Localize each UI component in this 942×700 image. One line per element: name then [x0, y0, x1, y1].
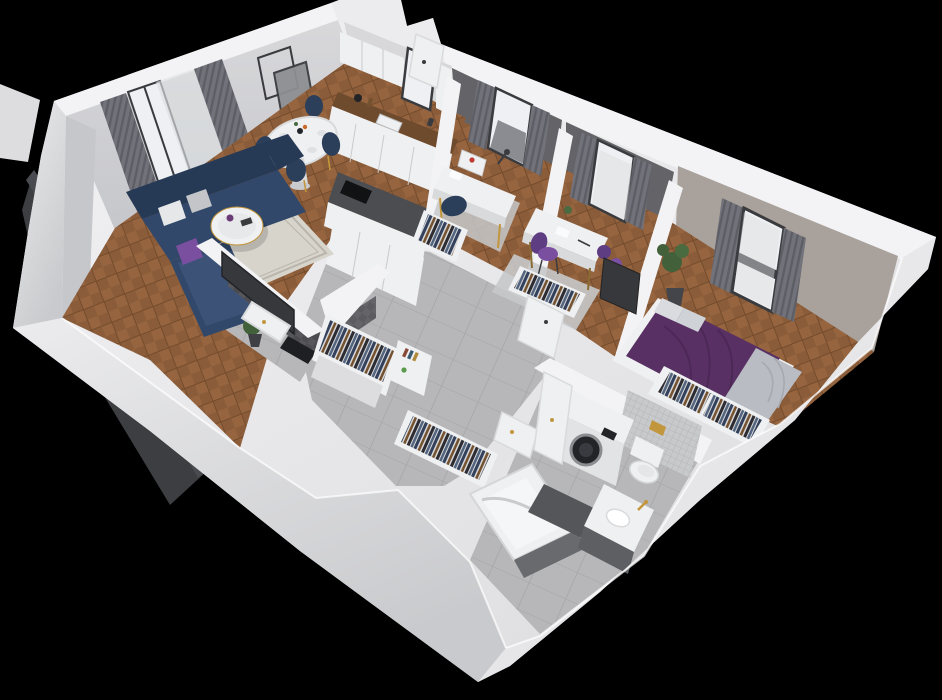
office2-chair-seat	[538, 247, 558, 261]
door-handle	[544, 320, 548, 324]
printer-red-part	[469, 157, 474, 162]
orange-fruit	[303, 125, 307, 129]
hall-door-handle	[510, 430, 514, 434]
faucet-head	[644, 500, 648, 504]
table-greens	[294, 122, 298, 126]
kitchen-kettle	[354, 94, 362, 102]
table-vase	[297, 128, 303, 134]
dining-chair-back	[305, 95, 323, 117]
dining-table-base	[290, 182, 310, 190]
bedroom-plant-leaves	[675, 244, 689, 258]
shelf-plant	[401, 367, 406, 372]
plate	[307, 147, 317, 153]
coffee-table-vase	[227, 215, 234, 222]
washer-door-inner	[579, 443, 593, 457]
apartment-3d-floorplan: 3D isometric cutaway rendering of an apa…	[0, 0, 942, 700]
coffee-table-inner	[218, 213, 256, 239]
floor-cushion-1	[597, 245, 611, 259]
bedroom-plant-leaves	[657, 244, 669, 256]
entry-door-handle	[422, 60, 426, 64]
lamp-head	[504, 149, 510, 155]
render-canvas: 3D isometric cutaway rendering of an apa…	[0, 0, 942, 700]
bathroom-door-handle	[550, 418, 554, 422]
shower-drain	[262, 320, 266, 324]
office2-desk-plant	[564, 206, 572, 214]
